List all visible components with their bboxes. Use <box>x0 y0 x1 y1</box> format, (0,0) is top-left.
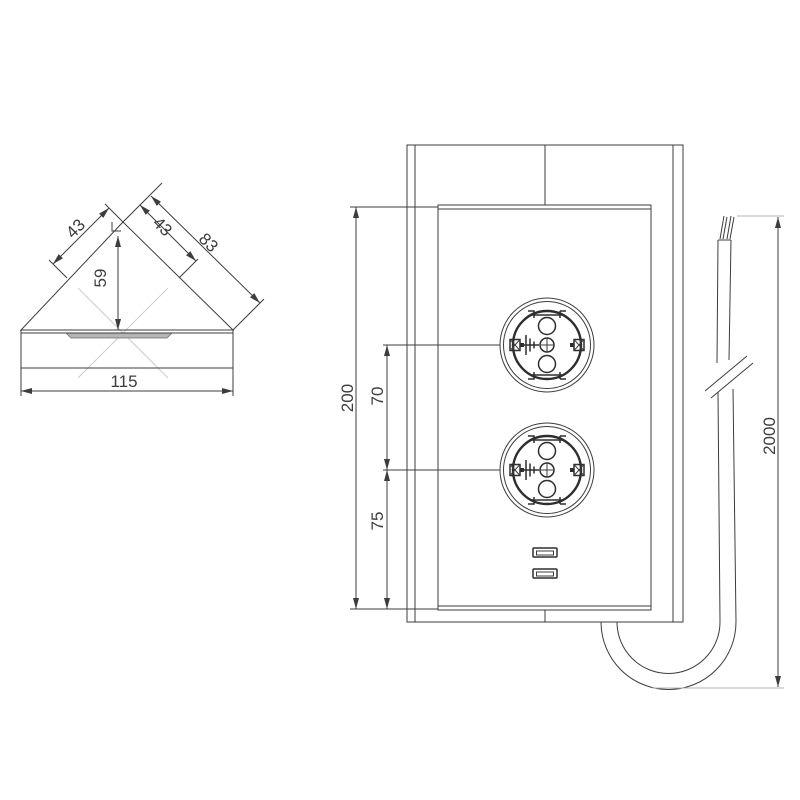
dim-label-59: 59 <box>91 269 110 288</box>
front-view: 200 70 75 <box>338 145 683 622</box>
dimension-83: 83 <box>151 196 264 330</box>
usb-port-2 <box>533 569 557 578</box>
power-cable: 2000 <box>601 216 784 689</box>
center-screw <box>540 463 554 477</box>
technical-drawing: 59 43 43 83 115 <box>0 0 800 800</box>
face-plate <box>438 205 651 610</box>
usb-port-1 <box>533 548 557 557</box>
cable-break-mark <box>705 356 753 398</box>
dim-label-43-right: 43 <box>149 213 176 240</box>
power-socket-bottom <box>500 423 594 517</box>
dimension-75: 75 <box>368 470 387 609</box>
right-angle-mark <box>112 222 121 231</box>
housing-outline <box>407 145 683 622</box>
dim-label-75: 75 <box>368 512 387 531</box>
dim-label-2000: 2000 <box>760 417 779 455</box>
power-socket-top <box>500 298 594 392</box>
dim-label-115: 115 <box>110 372 137 391</box>
dim-label-70: 70 <box>368 387 387 406</box>
dimension-height-59: 59 <box>91 236 118 330</box>
dimension-left-43: 43 <box>49 204 123 278</box>
center-screw <box>540 338 554 352</box>
wire-ends <box>720 216 734 239</box>
dim-label-43-left: 43 <box>62 215 89 242</box>
lid-seam <box>66 333 172 338</box>
earth-symbol <box>521 460 539 480</box>
dimension-200: 200 <box>338 207 438 609</box>
dim-label-200: 200 <box>338 384 357 412</box>
apex-extension-line <box>123 183 162 222</box>
dimension-115: 115 <box>21 368 233 396</box>
dim-label-83: 83 <box>195 229 222 256</box>
corner-view: 59 43 43 83 115 <box>21 183 264 396</box>
earth-symbol <box>521 335 539 355</box>
technical-drawing-canvas: 59 43 43 83 115 <box>0 0 800 800</box>
dimension-70: 70 <box>368 345 387 470</box>
